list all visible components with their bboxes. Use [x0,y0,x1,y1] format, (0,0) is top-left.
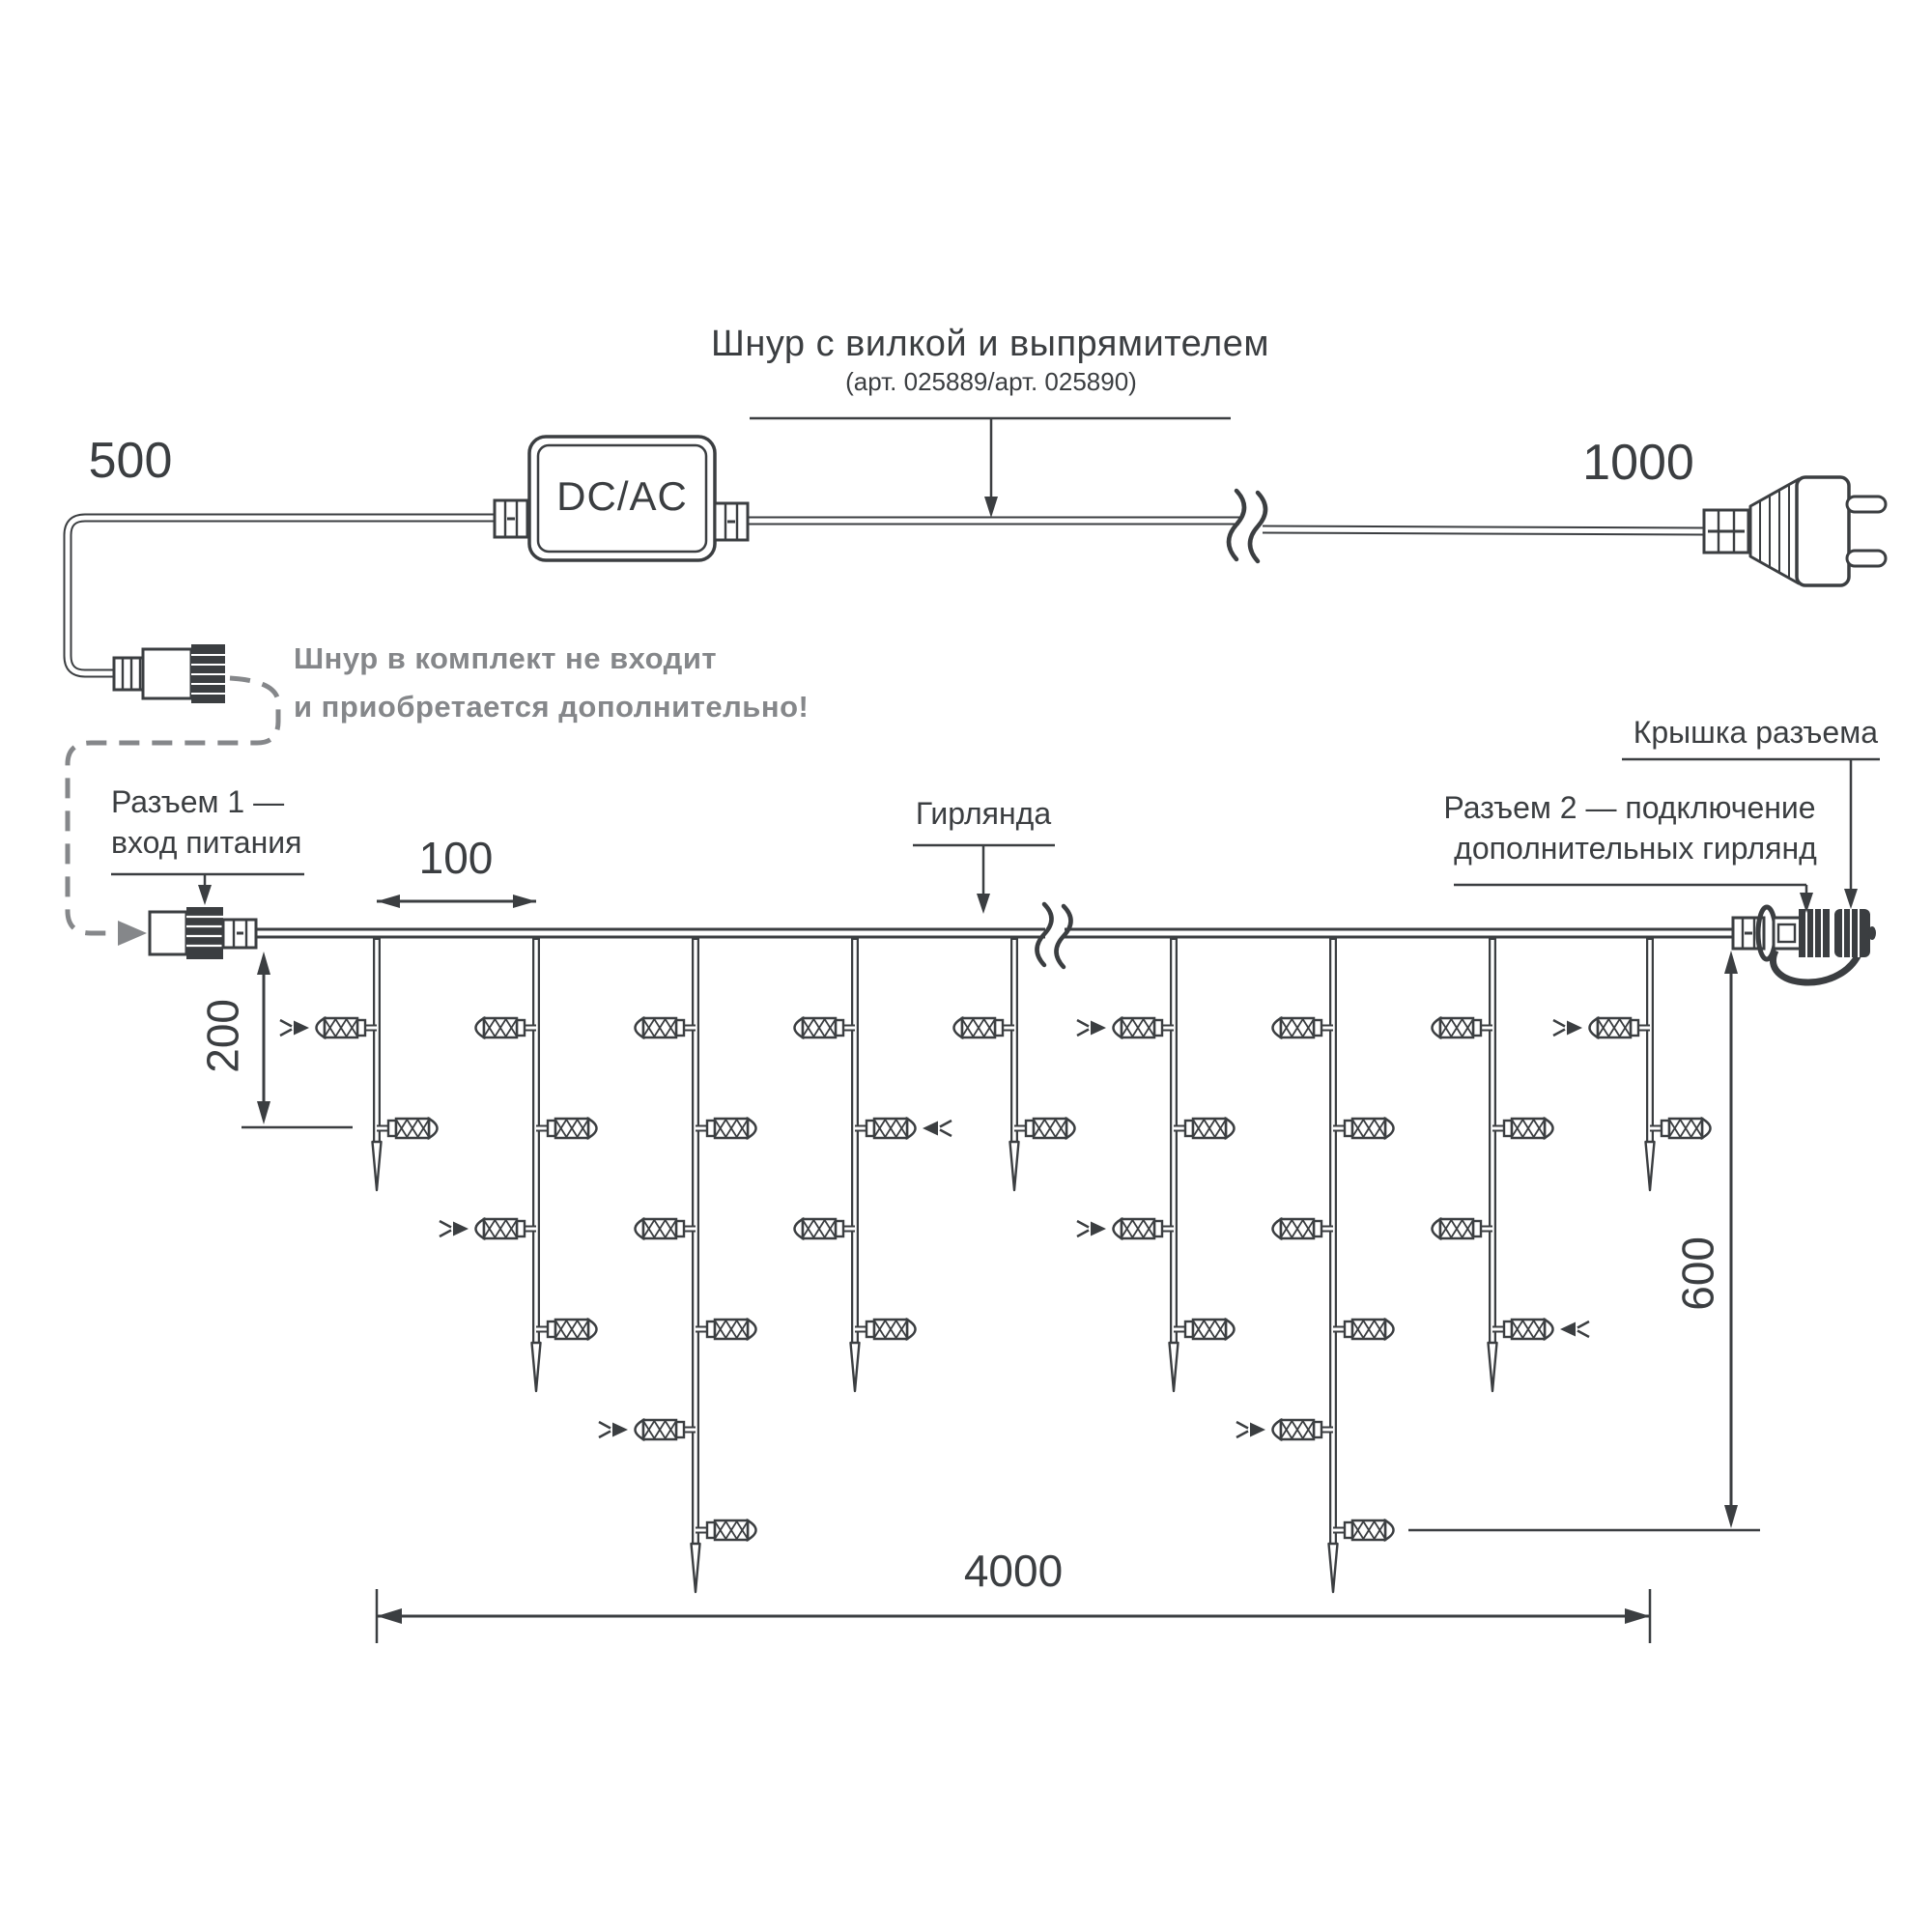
diagram-canvas [0,0,1932,1932]
connector1-leader-line [111,874,304,905]
drop-tip [1646,1142,1655,1190]
dimension-4000 [377,1589,1650,1643]
bulb-cap [636,1420,644,1439]
dim-200-label: 200 [200,963,247,1108]
bulb-cap [1702,1119,1711,1138]
bulb-cap [1433,1018,1441,1037]
bulb-cap [1385,1520,1394,1540]
connector2-icon [1733,907,1876,982]
bulb-cap [429,1119,438,1138]
connector1-label-line1: Разъем 1 — [111,786,284,819]
flash-arrow-icon [294,1021,309,1036]
converter-label: DC/AC [529,475,715,519]
bulb-cap [748,1520,756,1540]
drop-tip [1489,1343,1497,1391]
diagram-page: Шнур с вилкой и выпрямителем (арт. 02588… [0,0,1932,1932]
bulb-cap [636,1219,644,1238]
bulb-cap [588,1119,597,1138]
dim-100-label: 100 [384,835,528,882]
bulb-cap [1273,1420,1282,1439]
bulb-cap [588,1320,597,1339]
drop-tip [1170,1343,1179,1391]
bulb-cap [1545,1119,1553,1138]
connector1-icon [150,907,256,959]
bulb-cap [636,1018,644,1037]
cord-title: Шнур с вилкой и выпрямителем [700,325,1280,363]
bulb-cap [1590,1018,1599,1037]
flash-arrow-icon [1560,1322,1576,1337]
flash-arrow-icon [612,1423,628,1437]
flash-arrow-icon [1250,1423,1265,1437]
garland-label: Гирлянда [887,798,1080,831]
drop-tip [373,1142,382,1190]
bulb-cap [795,1018,804,1037]
cord-subtitle: (арт. 025889/арт. 025890) [701,369,1281,396]
bulb-cap [1114,1219,1122,1238]
bulb-cap [1385,1320,1394,1339]
flash-arrow-icon [1091,1222,1106,1236]
dim-4000-label: 4000 [917,1548,1110,1595]
connector2-label-line1: Разъем 2 — подключение [1436,792,1823,825]
drop-tip [1010,1142,1019,1190]
flash-arrow-icon [923,1122,938,1136]
dim-500-label: 500 [58,435,203,488]
drop-tip [532,1343,541,1391]
bulb-cap [907,1320,916,1339]
flash-arrow-icon [1567,1021,1582,1036]
flash-arrow-icon [1091,1021,1106,1036]
bulb-cap [907,1119,916,1138]
connector-cap-icon [1834,909,1876,957]
bulb-cap [1433,1219,1441,1238]
bulb-cap [1273,1219,1282,1238]
dim-1000-label: 1000 [1542,437,1735,490]
bulb-cap [1273,1018,1282,1037]
cord-break-icon [1229,491,1265,561]
drop-tip [692,1544,700,1592]
bulb-cap [1226,1320,1235,1339]
note-line2: и приобретается дополнительно! [294,692,809,724]
title-leader-line [750,418,1231,518]
bulb-cap [795,1219,804,1238]
garland-wire [255,904,1735,967]
bulb-cap [1226,1119,1235,1138]
note-line1: Шнур в комплект не входит [294,643,717,675]
bulb-cap [476,1219,485,1238]
bulb-cap [954,1018,963,1037]
bulb-cap [748,1320,756,1339]
garland-break-icon [1037,904,1071,967]
flash-arrow-icon [453,1222,469,1236]
connector2-leader-line [1454,885,1813,913]
bulb-cap [1114,1018,1122,1037]
bulb-cap [1545,1320,1553,1339]
dim-600-label: 600 [1675,1201,1722,1346]
drop-tip [851,1343,860,1391]
dashed-path-arrow-icon [118,921,147,946]
garland-leader-line [913,845,1055,914]
bulb-cap [1066,1119,1075,1138]
bulb-cap [1385,1119,1394,1138]
cap-label: Крышка разъема [1588,717,1878,750]
dimension-100 [377,895,536,908]
mains-plug-icon [1704,477,1886,585]
drop-tip [1329,1544,1338,1592]
bulb-cap [317,1018,326,1037]
bulb-cap [748,1119,756,1138]
garland-drops [280,937,1711,1592]
cord-connector-icon [114,644,225,703]
dimension-200 [241,952,353,1127]
connector2-label-line2: дополнительных гирлянд [1442,833,1829,866]
connector1-label-line2: вход питания [111,827,301,860]
bulb-cap [476,1018,485,1037]
